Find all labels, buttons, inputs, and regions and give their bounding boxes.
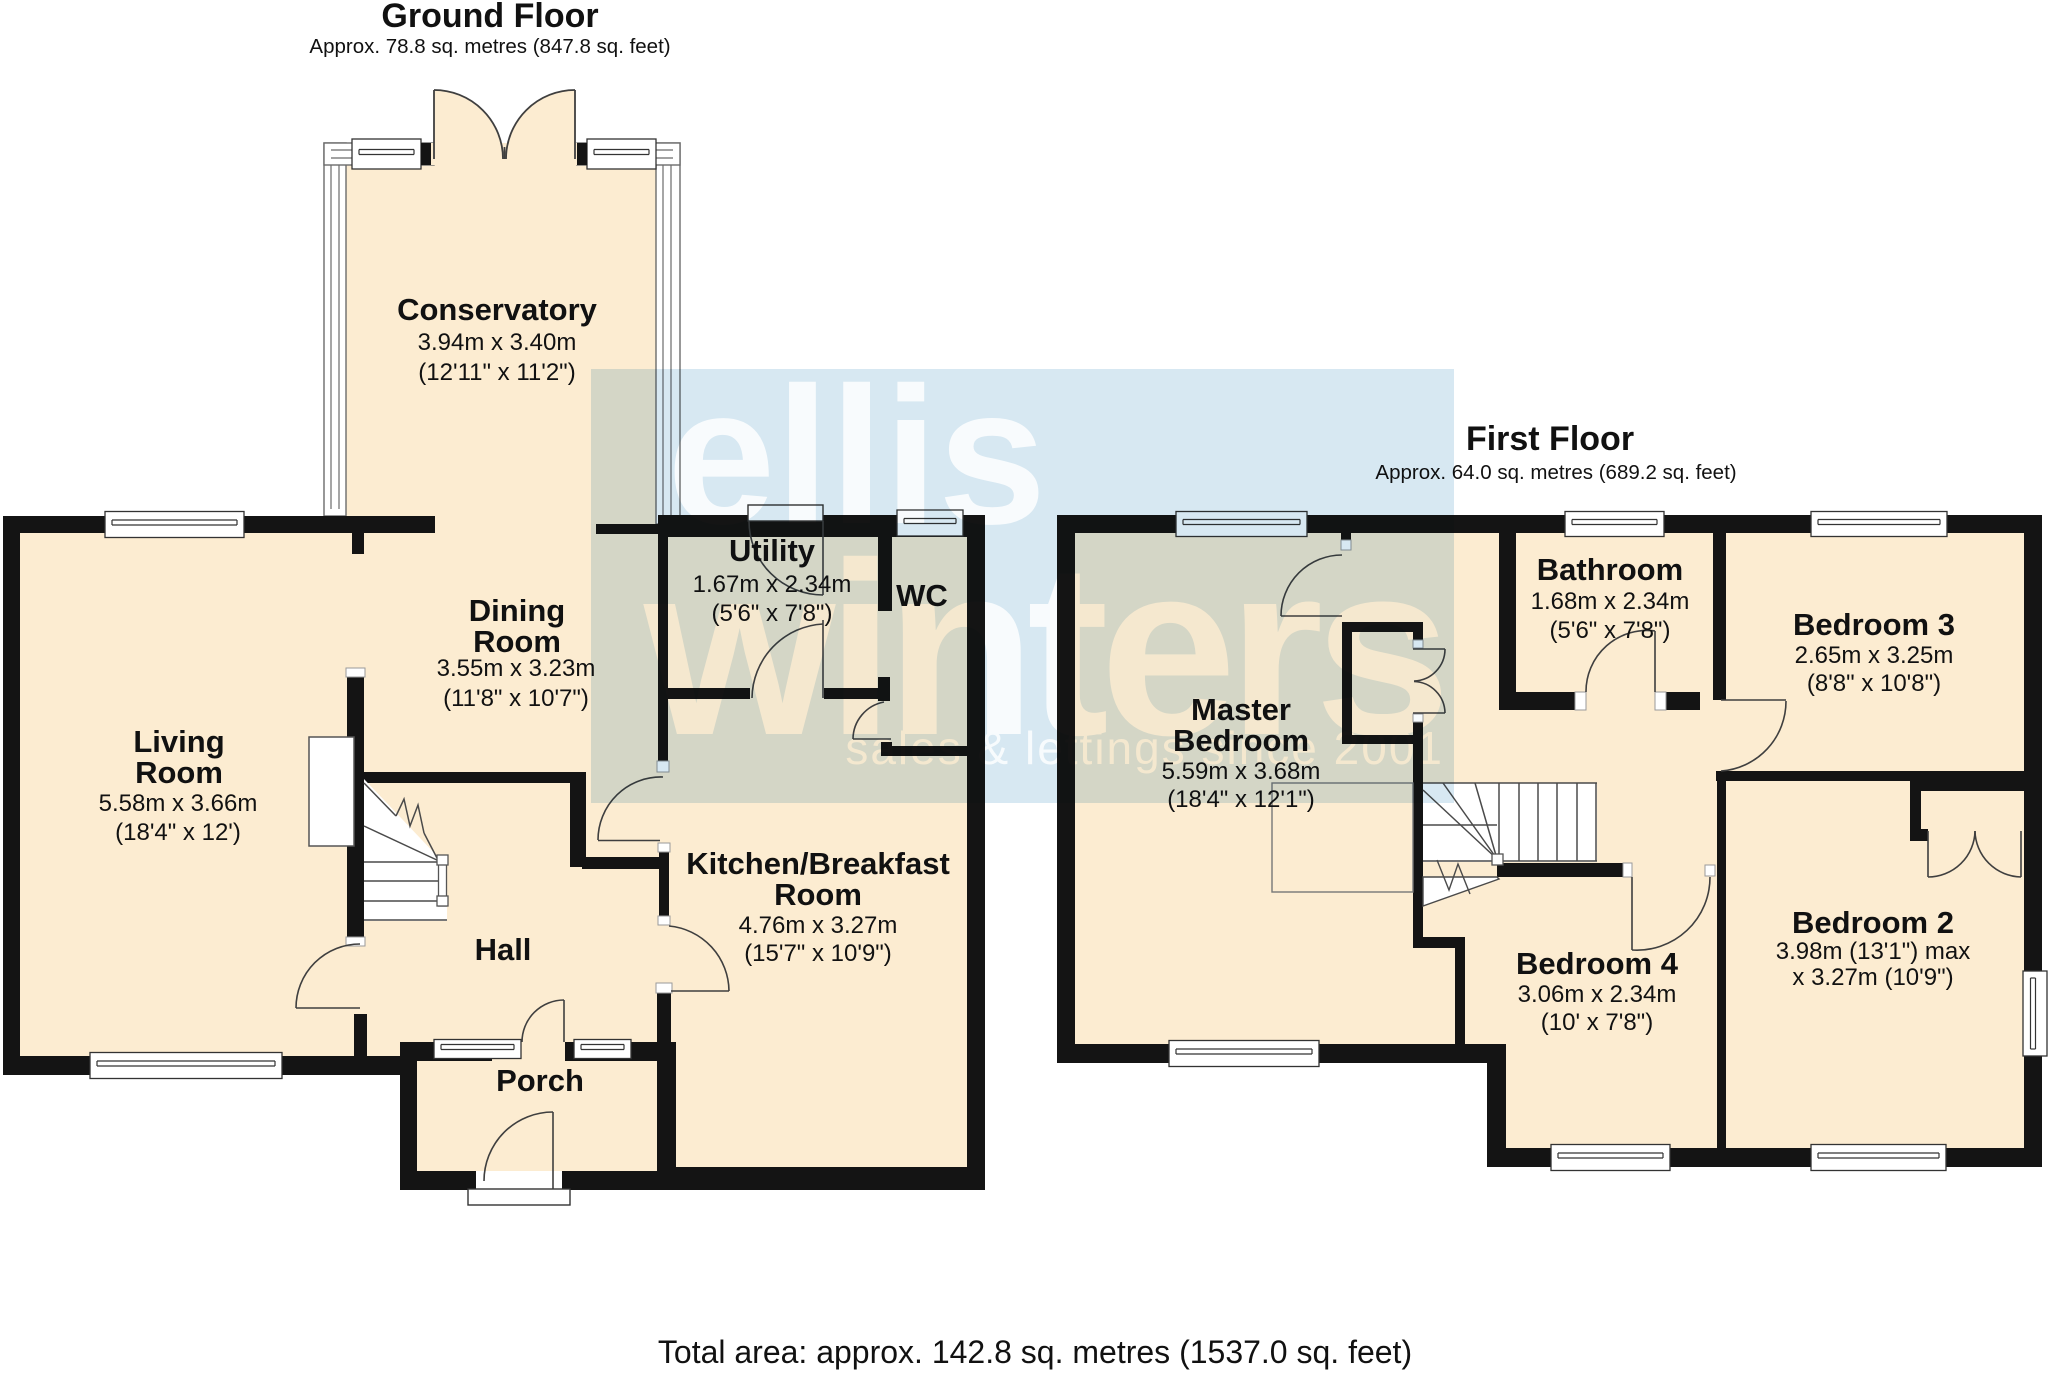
svg-text:Room: Room xyxy=(473,624,561,659)
svg-text:3.06m x 2.34m: 3.06m x 2.34m xyxy=(1518,981,1677,1008)
svg-text:(8'8" x 10'8"): (8'8" x 10'8") xyxy=(1807,670,1941,697)
svg-text:(10' x 7'8"): (10' x 7'8") xyxy=(1541,1009,1653,1036)
svg-text:Approx. 78.8 sq. metres (847.8: Approx. 78.8 sq. metres (847.8 sq. feet) xyxy=(309,35,670,58)
svg-text:Kitchen/Breakfast: Kitchen/Breakfast xyxy=(686,846,950,881)
svg-text:Ground Floor: Ground Floor xyxy=(381,0,598,35)
svg-text:Dining: Dining xyxy=(469,593,565,628)
svg-text:Bedroom 2: Bedroom 2 xyxy=(1792,905,1954,940)
svg-text:Room: Room xyxy=(135,755,223,790)
svg-text:Conservatory: Conservatory xyxy=(397,292,598,327)
svg-text:(5'6" x 7'8"): (5'6" x 7'8") xyxy=(1550,617,1671,644)
svg-text:(12'11" x 11'2"): (12'11" x 11'2") xyxy=(418,359,575,386)
svg-text:3.55m x 3.23m: 3.55m x 3.23m xyxy=(437,655,596,682)
svg-text:1.68m x 2.34m: 1.68m x 2.34m xyxy=(1531,588,1690,615)
svg-text:(18'4" x 12'): (18'4" x 12') xyxy=(115,819,241,846)
svg-text:Bathroom: Bathroom xyxy=(1537,552,1683,587)
svg-text:(11'8" x 10'7"): (11'8" x 10'7") xyxy=(443,685,589,712)
svg-text:Hall: Hall xyxy=(475,932,532,967)
svg-text:Bedroom 4: Bedroom 4 xyxy=(1516,946,1679,981)
svg-text:x 3.27m (10'9"): x 3.27m (10'9") xyxy=(1792,964,1953,991)
svg-text:Living: Living xyxy=(133,724,224,759)
svg-text:Total area: approx. 142.8 sq.: Total area: approx. 142.8 sq. metres (15… xyxy=(658,1334,1412,1370)
svg-text:3.94m x 3.40m: 3.94m x 3.40m xyxy=(418,329,577,356)
svg-text:3.98m (13'1") max: 3.98m (13'1") max xyxy=(1776,938,1971,965)
svg-text:Porch: Porch xyxy=(496,1063,584,1098)
svg-text:(15'7" x 10'9"): (15'7" x 10'9") xyxy=(744,940,892,967)
svg-text:First Floor: First Floor xyxy=(1466,420,1634,458)
svg-text:Room: Room xyxy=(774,877,862,912)
svg-text:2.65m x 3.25m: 2.65m x 3.25m xyxy=(1795,642,1954,669)
svg-text:4.76m x 3.27m: 4.76m x 3.27m xyxy=(739,912,898,939)
svg-text:Bedroom 3: Bedroom 3 xyxy=(1793,607,1955,642)
svg-text:5.58m x 3.66m: 5.58m x 3.66m xyxy=(99,790,258,817)
